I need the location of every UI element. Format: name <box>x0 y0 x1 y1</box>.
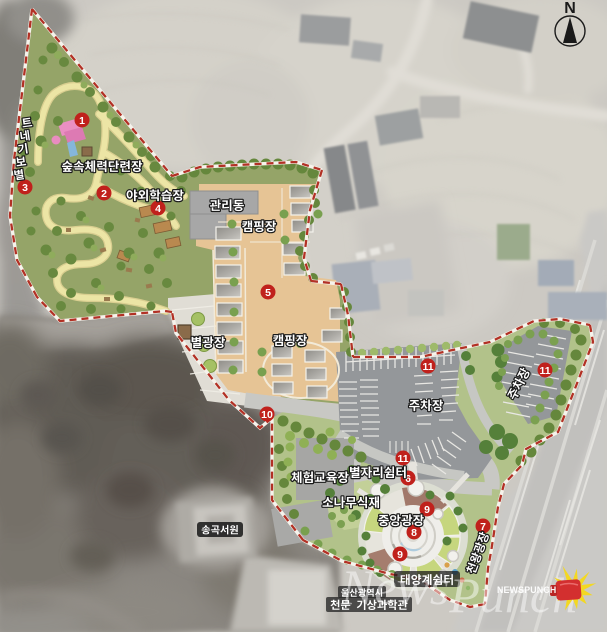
svg-text:2: 2 <box>101 188 107 200</box>
svg-text:N: N <box>564 0 576 17</box>
svg-text:4: 4 <box>155 203 161 215</box>
svg-text:11: 11 <box>422 361 433 373</box>
svg-text:5: 5 <box>265 287 271 299</box>
svg-text:11: 11 <box>397 453 408 465</box>
svg-text:9: 9 <box>424 504 430 516</box>
svg-text:3: 3 <box>22 182 28 194</box>
svg-text:11: 11 <box>539 365 550 377</box>
svg-text:10: 10 <box>261 409 273 421</box>
svg-text:NEWSPUNCH: NEWSPUNCH <box>497 585 556 595</box>
svg-text:1: 1 <box>79 115 85 127</box>
svg-text:8: 8 <box>411 527 417 539</box>
